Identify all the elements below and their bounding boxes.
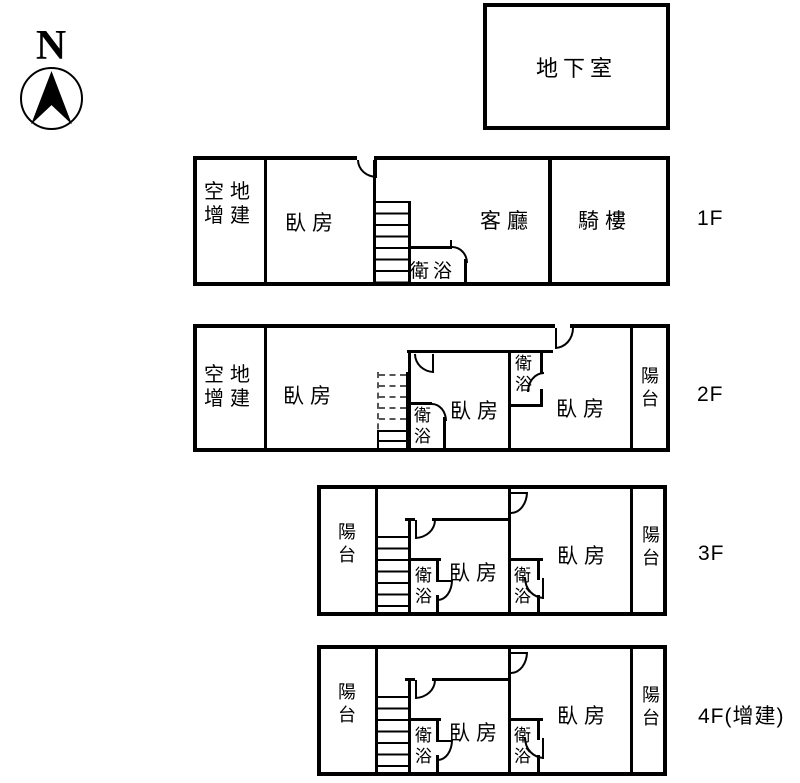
floor2-balcony-label: 陽台 [640, 366, 658, 412]
floor2-bedroom-mid-label: 臥房 [442, 395, 512, 425]
floor2-wall-balcony [630, 328, 633, 448]
floor1-living-room-label: 客廳 [472, 205, 542, 235]
floor2-stair-left-solid [377, 430, 379, 450]
floor-plan-canvas: N 地下室 空地 增建 臥房 衛浴 客廳 騎樓 1F [0, 0, 800, 783]
floor3-wall-corridor-b [432, 518, 511, 521]
stair-rung [379, 407, 406, 409]
floor4-wall-stair-right [408, 678, 411, 772]
floor3-balcony-left-label: 陽台 [337, 522, 355, 568]
floor3-wall-corridor-a [405, 518, 415, 521]
floor1-bathroom-wall-top [408, 246, 452, 249]
floor1-stairs [376, 201, 409, 282]
floor4-balcony-right-label: 陽台 [641, 685, 659, 731]
floor3-bedroom-mid-label: 臥房 [441, 557, 511, 587]
floor1-wall-living-arcade [548, 160, 552, 282]
stair-rung [379, 430, 406, 432]
floor2-bath-lower-wall-top [408, 402, 432, 405]
floor3-wall-stair-right [408, 518, 411, 612]
floor3-stairs [378, 536, 408, 612]
stair-rung [379, 440, 406, 442]
floor2-bedroom-right-label: 臥房 [548, 393, 618, 423]
floor4-balcony-left-label: 陽台 [337, 682, 355, 728]
floor4-wall-corridor-a [405, 678, 415, 681]
floor1-arcade-label: 騎樓 [570, 205, 640, 235]
stair-rung [379, 374, 406, 376]
floor4-bedroom-mid-label: 臥房 [441, 717, 511, 747]
floor4-tag: 4F(增建) [698, 700, 785, 730]
floor2-bath-upper-wall-bottom [508, 404, 543, 407]
floor2-tag: 2F [697, 383, 724, 407]
floor4-bath-mid-wall-right-b [436, 755, 439, 772]
floor1-vacant-line2: 增建 [197, 204, 263, 228]
floor1-bathroom-label: 衛浴 [408, 256, 458, 283]
floor2-bath-upper-wall-right-a [540, 352, 543, 374]
floor2-bathroom-lower-label: 衛浴 [412, 406, 429, 448]
floor3-bathroom-mid-label: 衛浴 [413, 566, 430, 608]
floor4-bath-mid-wall-right-a [436, 721, 439, 742]
stair-rung [379, 418, 406, 420]
floor3-wall-balcony-right [630, 489, 633, 612]
floor4-bathroom-right-label: 衛浴 [512, 726, 529, 768]
floor3-bath-mid-wall-right-a [436, 561, 439, 582]
floor1-vacant-addition-label: 空地 增建 [197, 180, 263, 228]
stair-rung [379, 396, 406, 398]
floor4-stairs [378, 696, 408, 772]
floor2-wall-corridor [407, 350, 553, 353]
floor3-bedroom-right-label: 臥房 [549, 540, 619, 570]
floor1-tag: 1F [697, 207, 724, 231]
compass-north-label: N [29, 22, 73, 70]
floor4-wall-corridor-b [432, 678, 511, 681]
floor3-bathroom-right-label: 衛浴 [512, 566, 529, 608]
basement-label: 地下室 [483, 51, 670, 83]
floor2-vacant-line2: 增建 [197, 387, 263, 411]
stair-rung [379, 385, 406, 387]
floor2-stairs [377, 372, 408, 450]
floor1-vacant-line1: 空地 [197, 180, 263, 204]
floor4-bath-right-wall-right-b [537, 755, 540, 772]
floor2-bedroom-left-label: 臥房 [275, 380, 345, 410]
floor2-wall-vacant-divider [264, 328, 267, 448]
floor3-bath-right-wall-right-b [537, 595, 540, 612]
floor4-wall-balcony-right [630, 649, 633, 772]
floor3-balcony-right-label: 陽台 [641, 525, 659, 571]
floor3-tag: 3F [698, 542, 725, 566]
floor1-bedroom-label: 臥房 [277, 207, 347, 237]
floor1-wall-vacant-divider [264, 160, 267, 282]
floor4-bathroom-mid-label: 衛浴 [413, 726, 430, 768]
floor2-vacant-addition-label: 空地 增建 [197, 363, 263, 411]
floor1-bathroom-wall-post [464, 259, 467, 282]
floor2-bathroom-upper-label: 衛浴 [513, 354, 530, 396]
floor2-bath-upper-wall-right-b [540, 389, 543, 407]
floor3-bath-mid-wall-right-b [436, 595, 439, 612]
floor2-vacant-line1: 空地 [197, 363, 263, 387]
floor4-bedroom-right-label: 臥房 [549, 700, 619, 730]
